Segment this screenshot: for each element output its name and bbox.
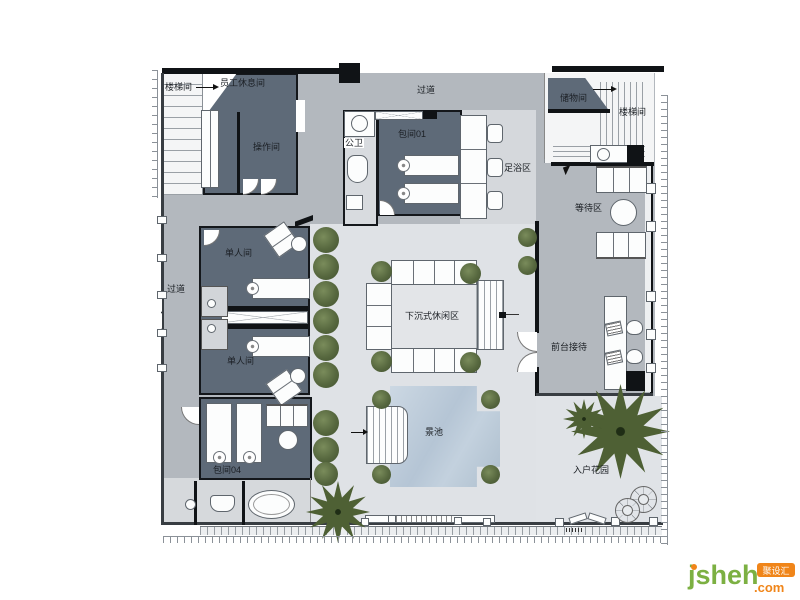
stepping-stone-center (622, 505, 633, 516)
room04-table (278, 430, 298, 450)
door-leaf-icon (148, 313, 162, 329)
room-label-scenic-pool: 景池 (425, 427, 443, 437)
stair-marker (499, 312, 506, 318)
fence-post (388, 515, 396, 523)
room-label-waiting-area: 等待区 (575, 203, 602, 213)
watermark-tld: .com (754, 580, 784, 595)
bed-headrest-icon (397, 159, 410, 172)
foot-bath-cushion (487, 191, 503, 210)
wall-top-right (552, 66, 664, 72)
bush-icon (371, 351, 392, 372)
bush-icon (372, 390, 391, 409)
cabinet (375, 111, 423, 120)
wall-top-block (339, 63, 360, 83)
window-strip-right (645, 166, 651, 392)
bed-headrest-icon (246, 282, 259, 295)
room-label-staff-lounge: 员工休息间 (220, 78, 265, 88)
bush-icon (313, 254, 339, 280)
bed-headrest-icon (246, 340, 259, 353)
reception-block (626, 371, 645, 391)
room-label-stairwell-top-left: 楼梯间 (165, 82, 192, 92)
bush-icon (313, 410, 339, 436)
bush-icon (518, 256, 537, 275)
bush-icon (460, 263, 481, 284)
dimension-marks (566, 528, 582, 532)
bush-icon (372, 465, 391, 484)
toilet-icon (210, 495, 235, 512)
ruler-left (152, 70, 158, 198)
staff-closet (201, 110, 219, 188)
room-label-reception: 前台接待 (551, 342, 587, 352)
column-marker (646, 329, 656, 340)
label-arrow-line (593, 89, 611, 90)
bush-icon (313, 335, 339, 361)
side-table (291, 236, 307, 252)
column-marker (646, 291, 656, 302)
stepping-stone-center (638, 494, 649, 505)
wall-reception-bottom (536, 393, 653, 396)
basin-icon (185, 499, 196, 510)
room-label-stairwell-top-right: 楼梯间 (619, 107, 646, 117)
office-chair (626, 349, 643, 364)
bathtub-inner (253, 494, 290, 515)
waiting-table (610, 199, 637, 226)
room-label-private-room-01: 包间01 (398, 129, 426, 139)
wall-top-left (162, 68, 343, 74)
bush-icon (314, 462, 338, 486)
lower-basin (346, 195, 363, 210)
bush-icon (313, 437, 339, 463)
sunken-sofa-left (366, 283, 392, 350)
wall-room01-top (423, 110, 437, 119)
bush-icon (313, 308, 339, 334)
window-marker (157, 254, 167, 262)
shared-counter (221, 311, 308, 324)
bush-icon (313, 281, 339, 307)
ruler-right (661, 95, 668, 545)
divider-wall (221, 324, 308, 329)
stair-line (506, 314, 519, 315)
basin-icon (207, 299, 216, 308)
foot-bath-cushion (487, 158, 503, 177)
column-marker (646, 183, 656, 194)
deck-hatch (200, 526, 662, 535)
bed-headrest-icon (397, 187, 410, 200)
label-arrow-icon (213, 84, 219, 90)
waiting-sofa (596, 166, 647, 193)
bush-icon (460, 352, 481, 373)
bed-headrest-icon (243, 451, 256, 464)
foot-bath-cushion (487, 124, 503, 143)
basin-icon (207, 324, 216, 333)
column-marker (646, 221, 656, 232)
courtyard-bath-divider (310, 478, 311, 525)
massage-bed (252, 278, 310, 299)
ruler-bottom (163, 536, 663, 543)
operation-room-wall (237, 112, 240, 195)
room-label-storage: 储物间 (560, 93, 587, 103)
room-label-public-toilet: 公卫 (344, 138, 364, 148)
basin-icon (597, 148, 610, 161)
label-arrow-line (196, 87, 213, 88)
foot-bath-couch (460, 115, 487, 219)
pool-arrow-icon (363, 429, 368, 435)
room-label-single-room-lower: 单人间 (227, 356, 254, 366)
window-marker (157, 216, 167, 224)
side-table (290, 368, 306, 384)
room-label-single-room-upper: 单人间 (225, 248, 252, 258)
massage-bed (404, 183, 459, 204)
reception-desk (604, 296, 627, 390)
room-label-corridor-top: 过道 (417, 85, 435, 95)
bush-icon (481, 390, 500, 409)
fence-hatch (396, 516, 454, 522)
toilet-icon (347, 155, 368, 183)
window-marker (157, 329, 167, 337)
window-marker (157, 291, 167, 299)
watermark-brand: jsheh (688, 560, 759, 591)
bush-icon (313, 362, 339, 388)
watermark-j-dot (691, 564, 697, 570)
pool-steps (366, 406, 408, 464)
room-label-foot-bath: 足浴区 (504, 163, 531, 173)
office-chair (626, 320, 643, 335)
fence-post (454, 517, 462, 525)
wall-bath-b (242, 481, 245, 525)
fence-post (483, 518, 491, 526)
site-watermark: jsheh 聚设汇 .com (686, 558, 800, 600)
room-label-corridor-left: 过道 (167, 284, 185, 294)
watermark-badge: 聚设汇 (757, 563, 795, 577)
door-strip-staff (296, 100, 305, 132)
storage-room-wall (548, 109, 610, 113)
fence-post (649, 517, 658, 526)
room-label-private-room-04: 包间04 (213, 465, 241, 475)
column-marker (646, 363, 656, 373)
basin-icon (351, 115, 368, 132)
bush-icon (313, 227, 339, 253)
room-label-entry-garden: 入户花园 (573, 465, 609, 475)
room04-sofa (266, 404, 308, 427)
fence-post (555, 518, 564, 527)
room-label-sunken-lounge: 下沉式休闲区 (405, 311, 459, 321)
wc-closet (201, 319, 228, 350)
massage-bed (252, 336, 310, 357)
bush-icon (371, 261, 392, 282)
label-arrow-icon (611, 86, 617, 92)
counter-block (627, 145, 644, 163)
bed-headrest-icon (213, 451, 226, 464)
bush-icon (518, 228, 537, 247)
room-label-operation-room: 操作间 (253, 142, 280, 152)
bush-icon (481, 465, 500, 484)
window-marker (157, 364, 167, 372)
wall-stairhall-left (544, 73, 545, 159)
massage-bed (404, 155, 459, 176)
floor-plan: 楼梯间 员工休息间 操作间 过道 公卫 包间01 足浴区 储物间 楼梯间 等待区… (0, 0, 800, 600)
waiting-sofa (596, 232, 646, 259)
